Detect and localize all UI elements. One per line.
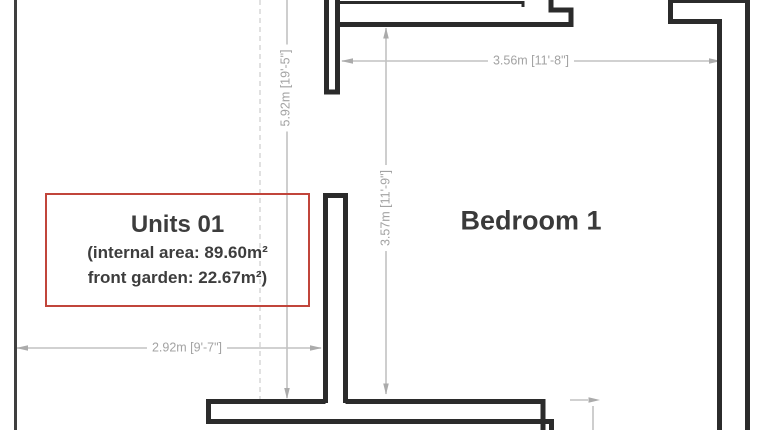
dimension-label-bedroom-depth: 3.57m [11'-9"] xyxy=(379,165,394,251)
wall-central-vertical xyxy=(326,196,346,404)
arrowhead-bottom-right xyxy=(589,397,601,402)
wall-right-inner xyxy=(671,0,720,430)
arrowhead-bedroom-width-left xyxy=(341,58,353,64)
dimension-label-bedroom-width: 3.56m [11'-8"] xyxy=(488,54,574,69)
dimension-label-garden-width: 2.92m [9'-7"] xyxy=(147,341,227,356)
arrowhead-overall-height-bottom xyxy=(284,388,290,399)
wall-bottom-outer xyxy=(209,402,552,430)
wall-bedroom-top-outer-edge xyxy=(340,3,523,8)
floor-plan: 3.56m [11'-8"] 5.92m [19'-5"] 3.57m [11'… xyxy=(0,0,770,430)
wall-top-left-vertical xyxy=(327,0,338,92)
unit-title: Units 01 xyxy=(131,211,224,239)
arrowhead-bedroom-depth-bottom xyxy=(383,384,389,395)
dimension-label-overall-height: 5.92m [19'-5"] xyxy=(279,44,294,131)
unit-front-garden: front garden: 22.67m²) xyxy=(88,266,267,289)
arrowhead-garden-width-left xyxy=(16,345,28,351)
unit-internal-area: (internal area: 89.60m² xyxy=(87,241,267,264)
unit-label-box: Units 01 (internal area: 89.60m² front g… xyxy=(45,193,310,307)
arrowhead-bedroom-depth-top xyxy=(383,28,389,39)
arrowhead-garden-width-right xyxy=(310,345,322,351)
room-label-bedroom1: Bedroom 1 xyxy=(460,206,601,237)
wall-bottom-inner xyxy=(346,402,544,430)
